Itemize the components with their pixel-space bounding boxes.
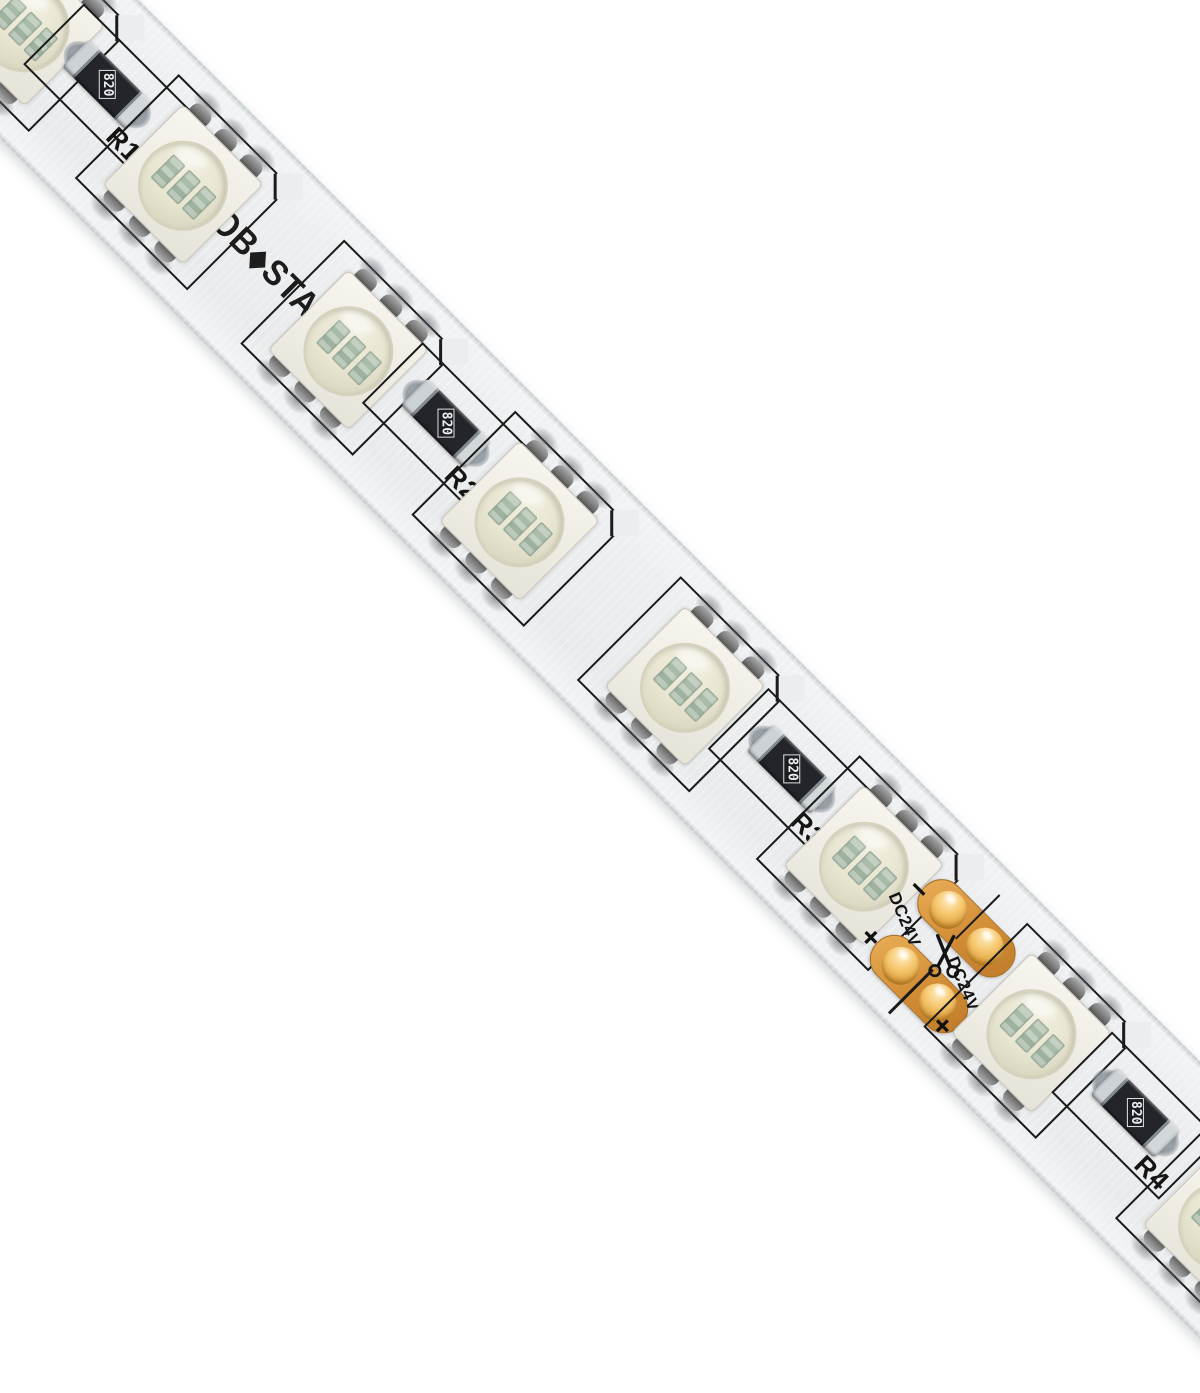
silkscreen-notch-cover bbox=[1125, 1022, 1151, 1048]
resistor-marking: 820 bbox=[99, 70, 116, 99]
resistor-marking: 820 bbox=[1127, 1098, 1144, 1127]
silkscreen-notch-cover bbox=[118, 15, 144, 41]
pad-dome bbox=[874, 939, 928, 993]
silkscreen-notch-line bbox=[955, 855, 958, 881]
silkscreen-notch-cover bbox=[958, 854, 984, 880]
silkscreen-notch-line bbox=[274, 174, 277, 200]
resistor-marking: 820 bbox=[437, 409, 454, 438]
led-die bbox=[1190, 1194, 1200, 1229]
silkscreen-notch-cover bbox=[277, 173, 303, 199]
silkscreen-notch-line bbox=[611, 510, 614, 536]
silkscreen-notch-cover bbox=[442, 339, 468, 365]
led-strip: GLOB◆STAR 820R1820R2820R3−DC24V+DC24V−+8… bbox=[0, 0, 1200, 1393]
silkscreen-notch-cover bbox=[779, 676, 805, 702]
resistor-marking: 820 bbox=[783, 754, 800, 783]
photo-background: GLOB◆STAR 820R1820R2820R3−DC24V+DC24V−+8… bbox=[0, 0, 1200, 1200]
silkscreen-notch-cover bbox=[613, 510, 639, 536]
